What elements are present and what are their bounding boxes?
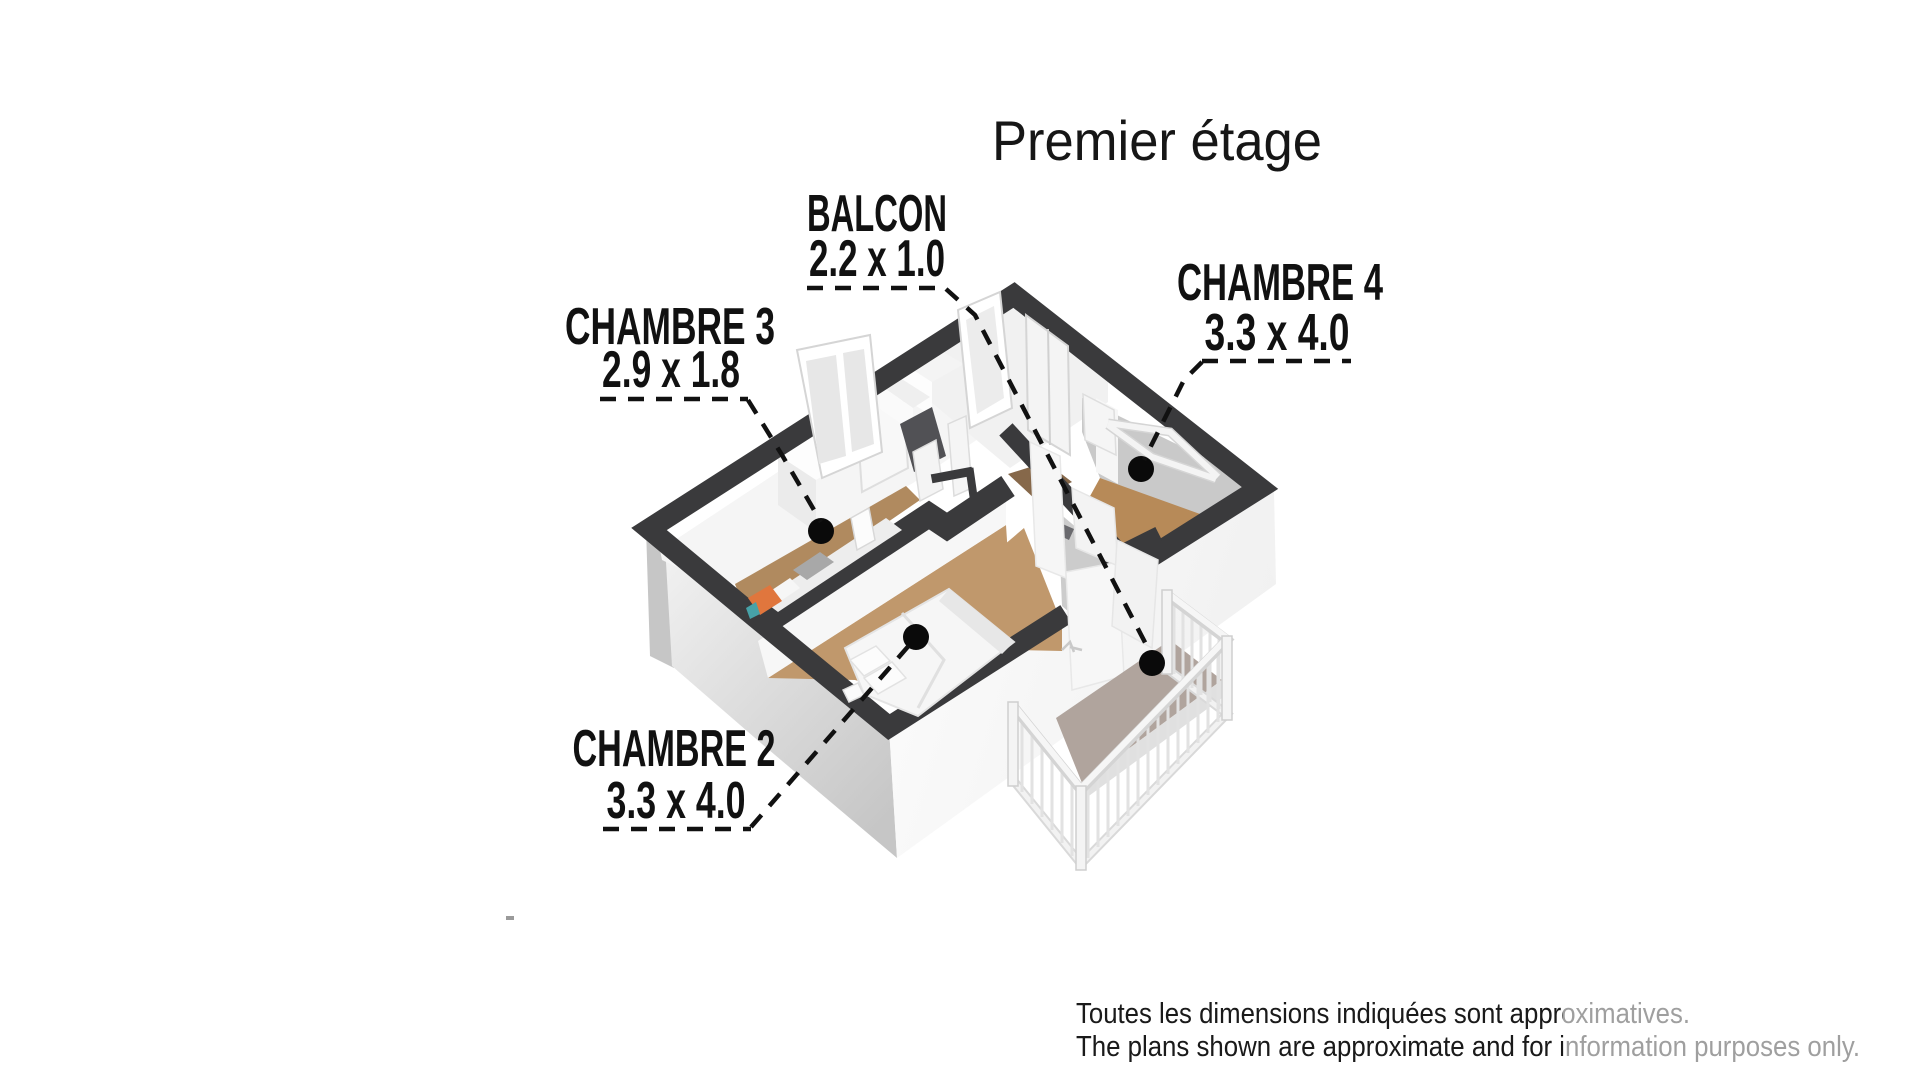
svg-text:Toutes les dimensions indiquée: Toutes les dimensions indiquées sont app… <box>1076 998 1690 1030</box>
svg-text:Premier étage: Premier étage <box>992 109 1322 172</box>
svg-text:CHAMBRE 2: CHAMBRE 2 <box>573 720 776 778</box>
svg-text:3.3 x 4.0: 3.3 x 4.0 <box>1205 304 1350 362</box>
svg-text:2.2 x 1.0: 2.2 x 1.0 <box>809 230 945 288</box>
svg-text:2.9 x 1.8: 2.9 x 1.8 <box>602 341 740 399</box>
svg-text:The plans shown are approximat: The plans shown are approximate and for … <box>1076 1031 1860 1063</box>
svg-text:3.3 x 4.0: 3.3 x 4.0 <box>607 772 746 830</box>
